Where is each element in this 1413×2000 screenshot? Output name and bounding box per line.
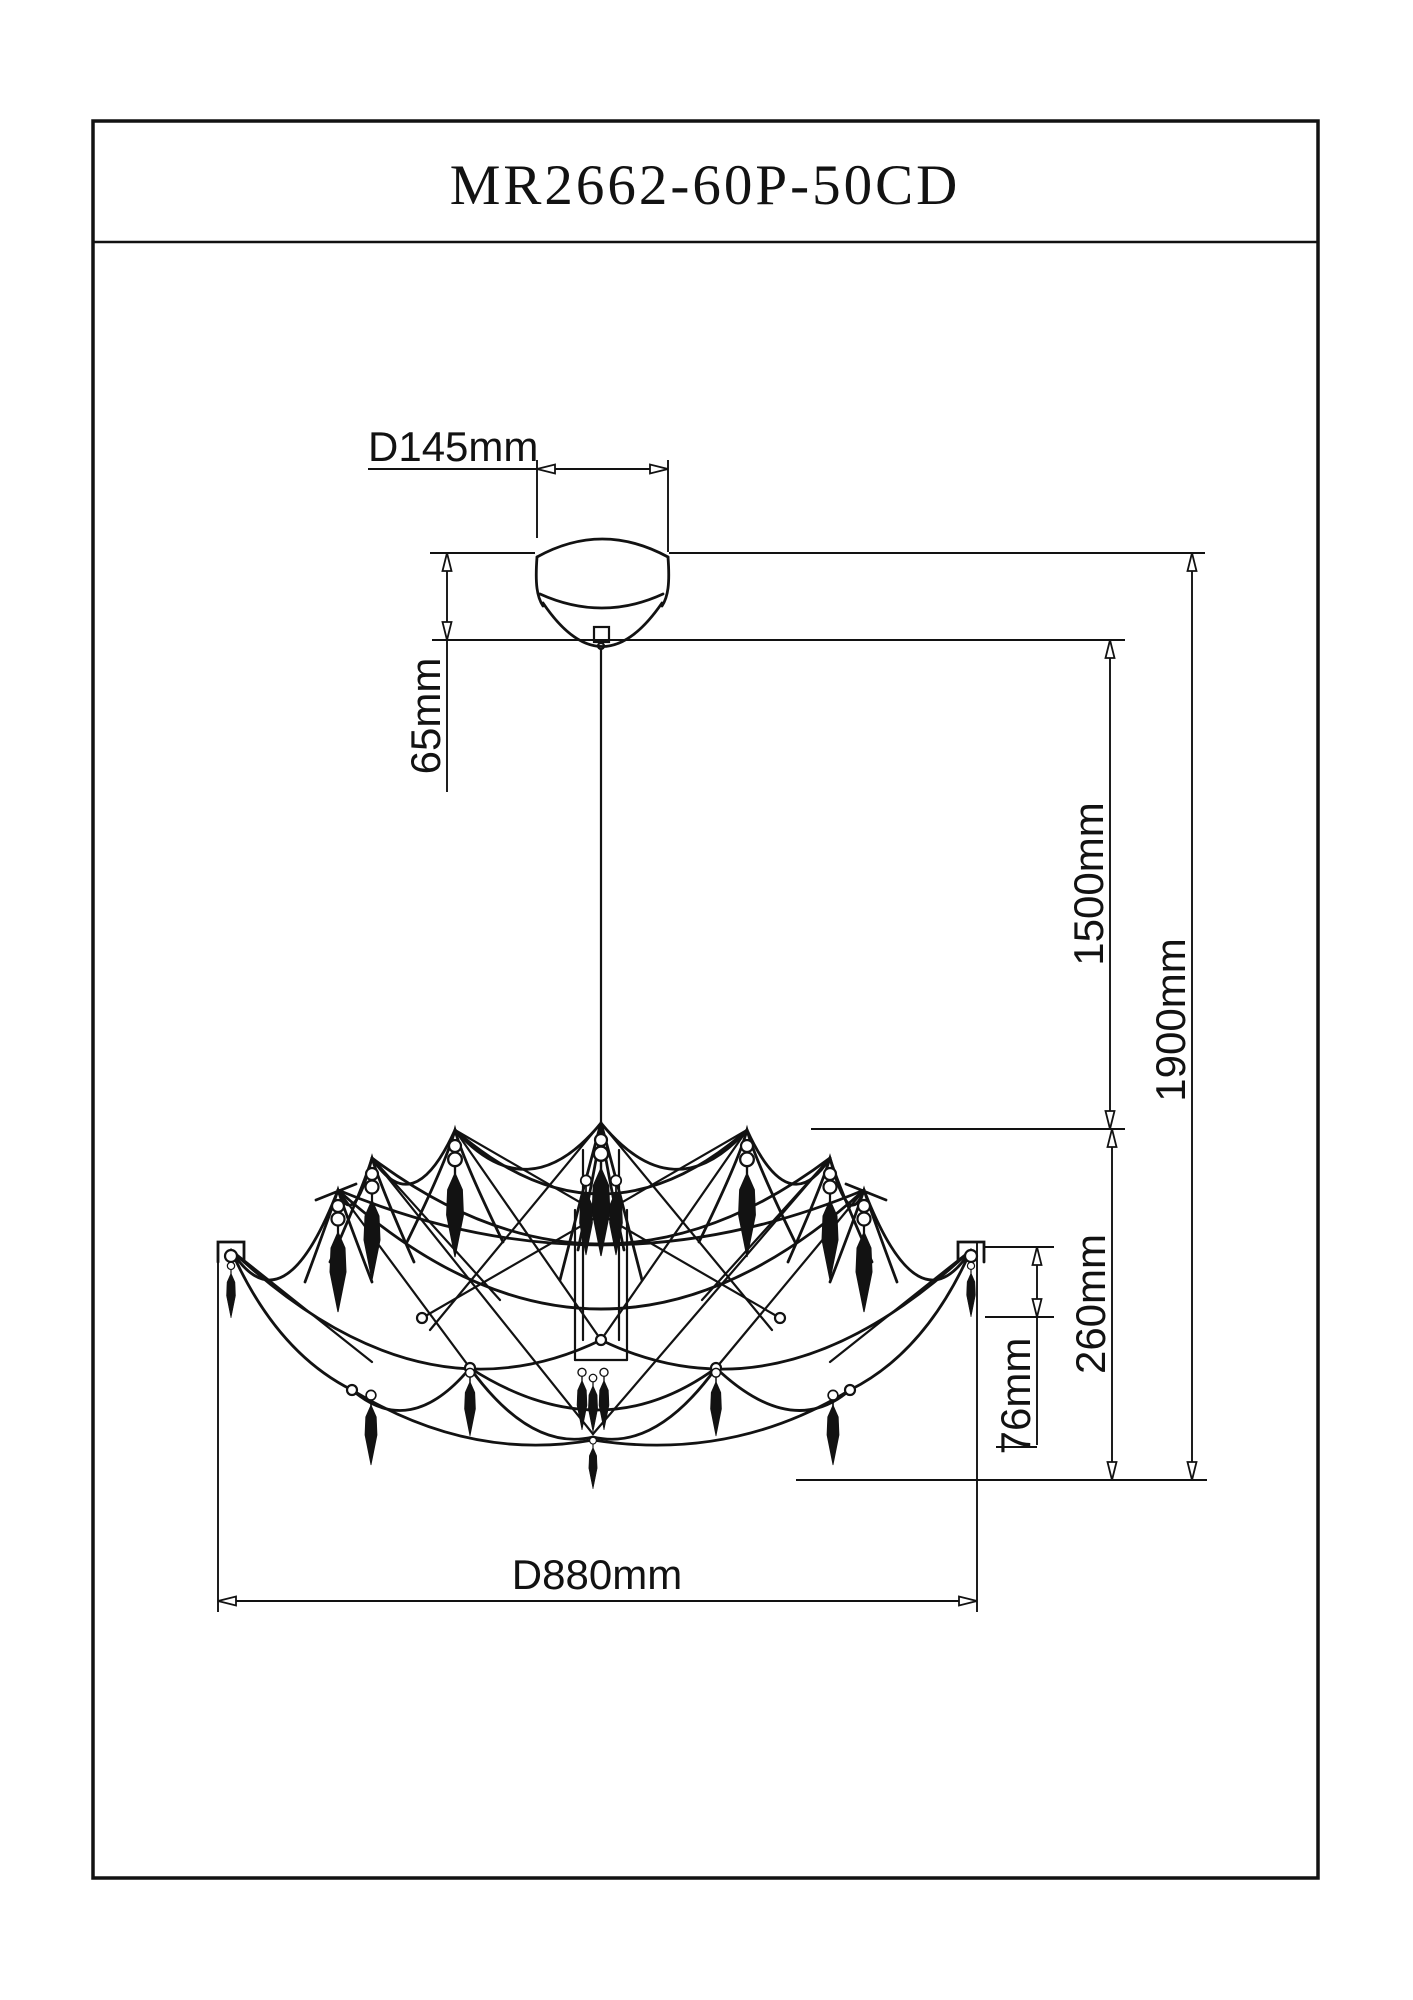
arrowhead-left-icon: [218, 1597, 236, 1606]
dim-crystal-length: 76mm: [985, 1247, 1054, 1454]
drawing-sheet: MR2662-60P-50CD D145mm 65mm: [0, 0, 1413, 2000]
arrowhead-up-icon: [1108, 1129, 1117, 1147]
technical-drawing: MR2662-60P-50CD D145mm 65mm: [0, 0, 1413, 2000]
dim-cord-length: 1500mm: [1065, 640, 1115, 1129]
model-number-title: MR2662-60P-50CD: [450, 154, 961, 217]
arrowhead-up-icon: [1033, 1247, 1042, 1265]
dim-total-height: 1900mm: [1147, 553, 1197, 1480]
chandelier-body: [218, 1123, 984, 1489]
arrowhead-down-icon: [1106, 1111, 1115, 1129]
arrowhead-right-icon: [959, 1597, 977, 1606]
cord-length-label: 1500mm: [1065, 802, 1112, 965]
arrowhead-up-icon: [1106, 640, 1115, 658]
arrowhead-left-icon: [537, 465, 555, 474]
dim-canopy-diameter: D145mm: [368, 423, 668, 552]
arrowhead-down-icon: [1188, 1462, 1197, 1480]
arrowhead-down-icon: [1033, 1299, 1042, 1317]
canopy-height-label: 65mm: [402, 658, 449, 775]
sheet-border: [93, 121, 1318, 1878]
crystal-length-label: 76mm: [992, 1338, 1039, 1455]
fixture-diameter-label: D880mm: [512, 1551, 682, 1598]
body-height-label: 260mm: [1067, 1234, 1114, 1374]
arrowhead-up-icon: [443, 553, 452, 571]
title-block: MR2662-60P-50CD: [93, 121, 1318, 1878]
arrowhead-up-icon: [1188, 553, 1197, 571]
canopy-diameter-label: D145mm: [368, 423, 538, 470]
dim-canopy-height: 65mm: [402, 553, 452, 792]
total-height-label: 1900mm: [1147, 938, 1194, 1101]
dim-body-height: 260mm: [1067, 1129, 1117, 1480]
arrowhead-down-icon: [443, 622, 452, 640]
canopy: [536, 539, 669, 1123]
arrowhead-down-icon: [1108, 1462, 1117, 1480]
arrowhead-right-icon: [650, 465, 668, 474]
